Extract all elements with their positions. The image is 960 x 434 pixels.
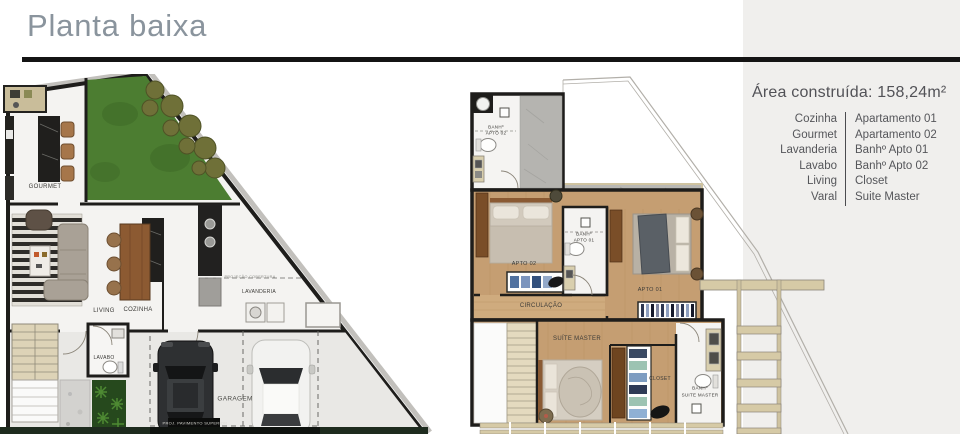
room-label-banhsuite-1: BANHº xyxy=(692,386,708,391)
stair-void xyxy=(474,323,507,423)
lavabo-room xyxy=(88,324,128,376)
legend-right: Banhº Apto 02 xyxy=(846,159,928,175)
room-label-suite: SUÍTE MASTER xyxy=(553,336,601,342)
page-title: Planta baixa xyxy=(27,8,207,44)
legend-left: Lavanderia xyxy=(745,143,846,159)
room-label-banh01-1: BANHº xyxy=(576,232,592,237)
wardrobe xyxy=(610,210,622,262)
room-label-banh02-2: APTO 02 xyxy=(486,131,507,136)
window xyxy=(500,108,509,117)
window xyxy=(692,404,701,413)
plant xyxy=(550,190,562,202)
room-label-closet: CLOSET xyxy=(649,376,671,382)
stairs xyxy=(12,324,58,422)
bottom-beams xyxy=(480,422,723,434)
legend-right: Apartamento 02 xyxy=(846,128,937,144)
room-label-gourmet: GOURMET xyxy=(29,184,62,190)
floor-plan-ground xyxy=(0,74,470,434)
legend-right: Suite Master xyxy=(846,190,920,206)
bottom-strip xyxy=(0,427,428,434)
washer xyxy=(477,98,490,111)
legend-row: Lavanderia Banhº Apto 01 xyxy=(745,143,937,159)
room-label-banh01-2: APTO 01 xyxy=(574,238,595,243)
legend-row: Varal Suite Master xyxy=(745,190,937,206)
legend-right: Apartamento 01 xyxy=(846,112,937,128)
toilet xyxy=(480,139,496,152)
page: Planta baixa Área construída: 158,24m² C… xyxy=(0,0,960,434)
legend-row: Cozinha Apartamento 01 xyxy=(745,112,937,128)
legend-row: Lavabo Banhº Apto 02 xyxy=(745,159,937,175)
label-proj-pavimento: PROJ. PAVIMENTO SUPERIOR xyxy=(163,421,228,426)
room-label-apto02: APTO 02 xyxy=(512,261,537,267)
kitchen-counter xyxy=(198,204,222,306)
legend-left: Living xyxy=(745,174,846,190)
toilet xyxy=(568,243,584,256)
room-label-banh02-1: BANHº xyxy=(488,125,504,130)
toilet xyxy=(103,361,117,373)
title-underline xyxy=(22,57,960,62)
legend-list: Cozinha Apartamento 01 Gourmet Apartamen… xyxy=(745,112,937,206)
plants xyxy=(92,380,126,434)
suite-master xyxy=(538,360,602,423)
room-label-cozinha: COZINHA xyxy=(123,307,152,313)
legend-left: Cozinha xyxy=(745,112,846,128)
legend-row: Gourmet Apartamento 02 xyxy=(745,128,937,144)
bath-apto02-block xyxy=(472,94,563,190)
wardrobe xyxy=(612,348,625,418)
armchair xyxy=(26,210,52,230)
garden xyxy=(86,76,232,200)
car-white xyxy=(247,340,315,434)
room-label-banhsuite-2: SUITE MASTER xyxy=(682,393,719,398)
room-label-circulacao: CIRCULAÇÃO xyxy=(520,303,562,309)
window xyxy=(581,218,590,227)
room-label-lavabo: LAVABO xyxy=(93,355,114,361)
room-label-garagem: GARAGEM xyxy=(217,396,252,403)
wardrobe xyxy=(476,193,488,257)
legend-right: Banhº Apto 01 xyxy=(846,143,928,159)
living-rug xyxy=(12,210,88,306)
paving xyxy=(60,380,90,434)
room-label-living: LIVING xyxy=(93,308,114,314)
legend-left: Lavabo xyxy=(745,159,846,175)
area-title: Área construída: 158,24m² xyxy=(752,84,952,102)
legend-left: Varal xyxy=(745,190,846,206)
room-label-lavanderia: LAVANDERIA xyxy=(242,289,276,295)
label-projecao: PROJEÇÃO COBERTURA xyxy=(224,275,275,279)
coffee-table xyxy=(30,246,50,276)
legend-right: Closet xyxy=(846,174,888,190)
room-label-apto01: APTO 01 xyxy=(638,287,663,293)
legend-left: Gourmet xyxy=(745,128,846,144)
sink xyxy=(112,329,124,338)
legend-row: Living Closet xyxy=(745,174,937,190)
